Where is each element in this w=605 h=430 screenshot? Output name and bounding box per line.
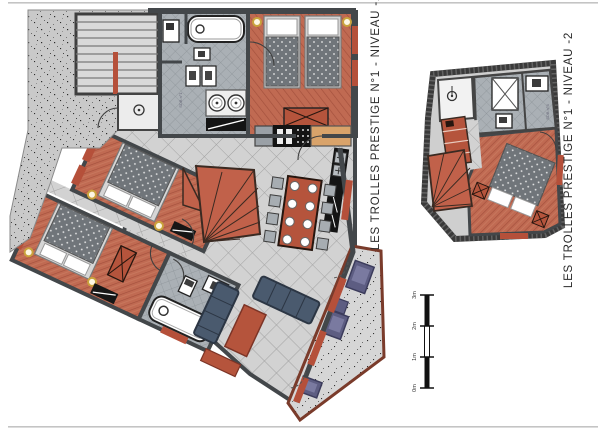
plan-niveau-1: SDB n°1 [0, 0, 384, 420]
bottom-rule [8, 426, 598, 428]
top-rule [8, 2, 598, 4]
pillow [308, 19, 338, 35]
bedside-lamp [253, 18, 261, 26]
staircase-niveau-2 [428, 150, 472, 211]
window [352, 26, 358, 54]
window [500, 233, 528, 239]
room-label-bath1: SDB n°1 [178, 92, 183, 108]
bedside-lamp [343, 18, 351, 26]
scale-label-3m: 3m [412, 291, 418, 299]
dining-area [263, 174, 336, 252]
exterior-wall [148, 8, 356, 13]
window [352, 60, 358, 86]
scale-label-1m: 1m [412, 353, 418, 361]
title-niveau-1: LES TROLLES PRESTIGE N°1 - NIVEAU -1 [370, 0, 382, 250]
scale-bar: 3m 2m 1m 0m [412, 291, 434, 392]
room-bathroom-4: SDB n°4 [474, 70, 556, 134]
page: SDB n°1 [0, 0, 605, 430]
staircase-main [76, 14, 158, 94]
scale-label-2m: 2m [412, 322, 418, 330]
shower-room [118, 94, 160, 130]
room-bedroom-1 [248, 12, 353, 136]
title-niveau-2: LES TROLLES PRESTIGE N°1 - NIVEAU -2 [563, 32, 575, 288]
floor-plan-canvas: SDB n°1 [0, 0, 605, 430]
room-bathroom-1: SDB n°1 [160, 12, 248, 136]
room-shower [438, 77, 474, 121]
room-label-bath4: SDB n°4 [545, 104, 550, 120]
plan-niveau-2: SDB n°4 LES TROLLES PRESTIGE N°1 - NIVE [424, 32, 575, 288]
single-bed [305, 16, 341, 88]
pillow [267, 19, 297, 35]
room-bedroom-4 [468, 128, 568, 235]
scale-label-0m: 0m [412, 384, 418, 392]
